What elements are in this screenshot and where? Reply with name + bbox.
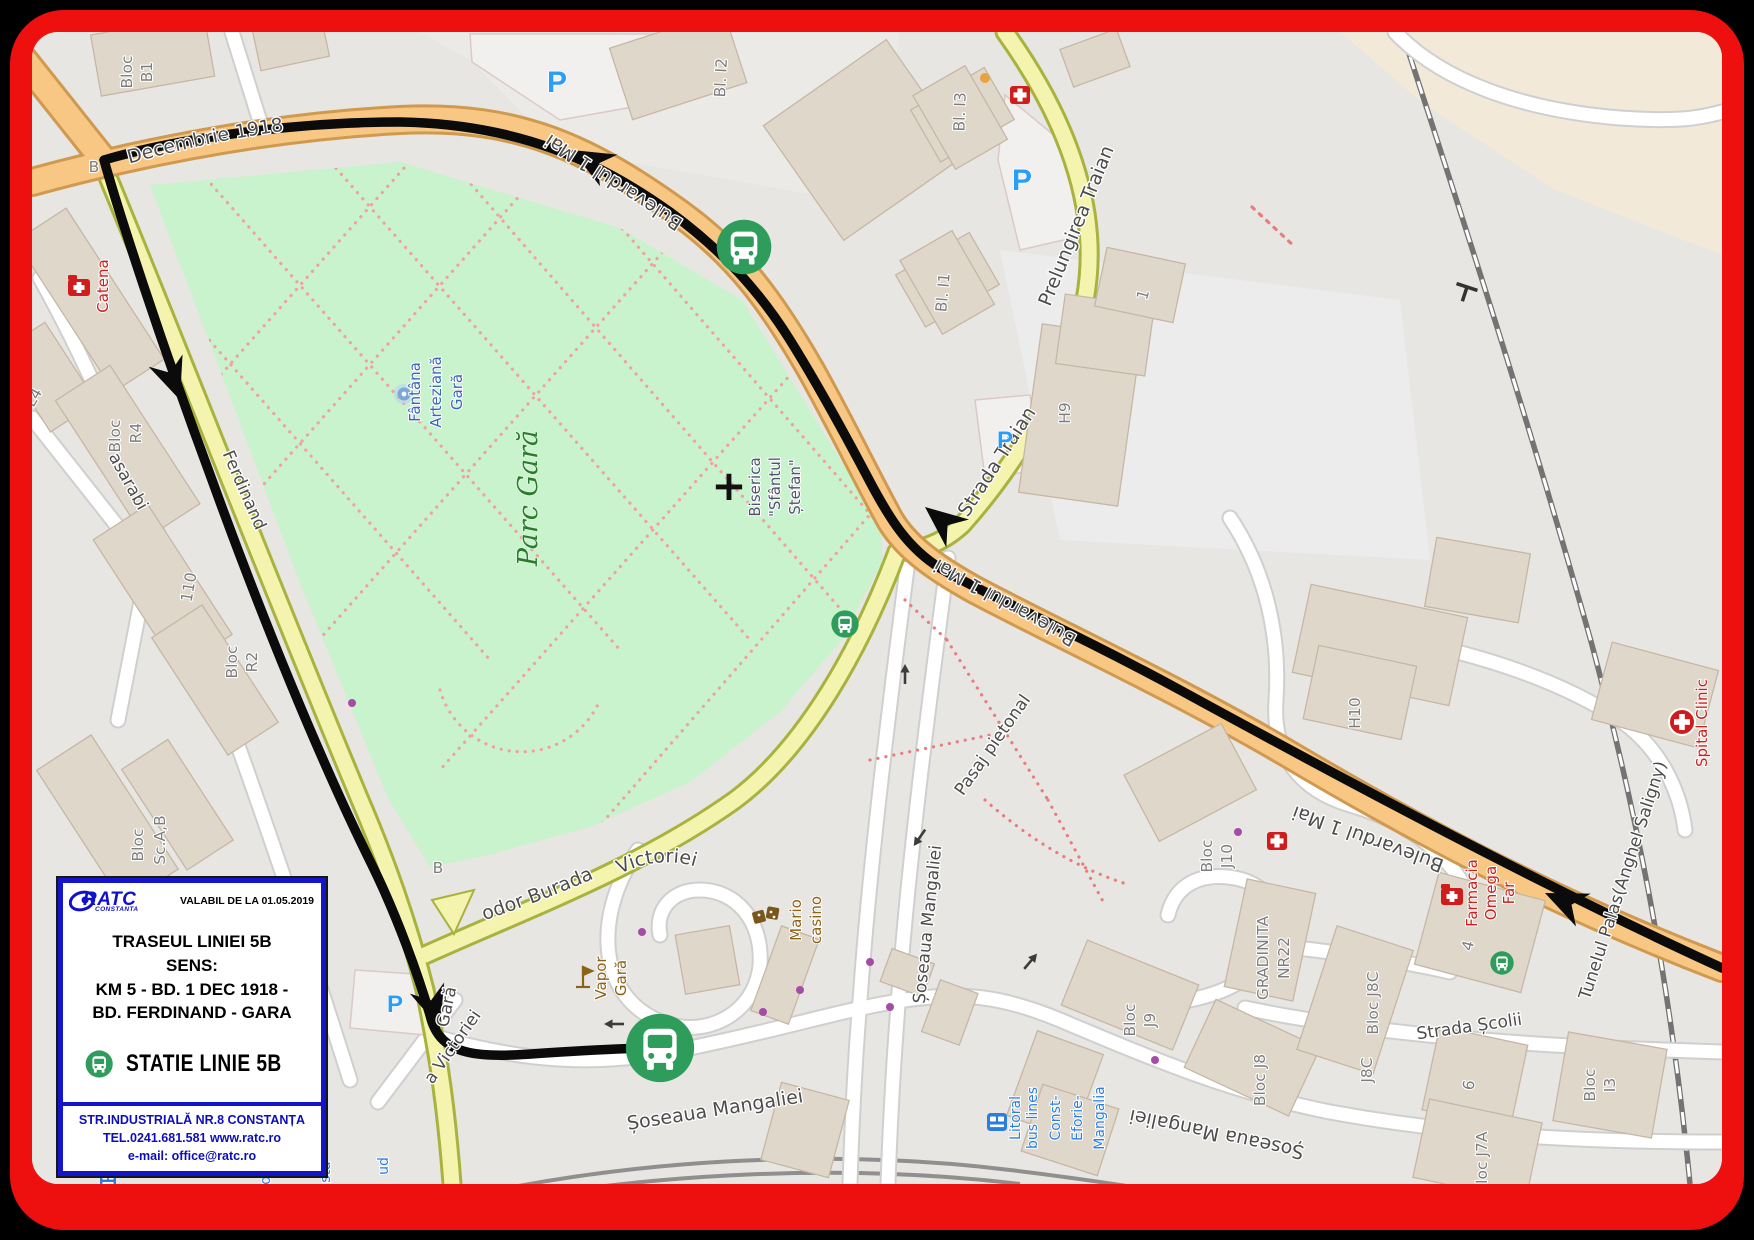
svg-text:GRADINITA: GRADINITA xyxy=(1254,915,1272,1000)
svg-text:P: P xyxy=(387,991,403,1018)
bus-stop-park xyxy=(831,610,858,637)
station-legend-label: STATIE LINIE 5B xyxy=(126,1050,282,1078)
screenshot-root: Bulevardul 1 Decembrie 1918 Strada Theod… xyxy=(0,0,1754,1240)
svg-text:NR22: NR22 xyxy=(1275,937,1293,979)
svg-text:P: P xyxy=(1012,164,1032,197)
clinic-cross-icon xyxy=(1010,86,1030,104)
svg-text:casino: casino xyxy=(807,896,825,944)
svg-text:Arteziană: Arteziană xyxy=(427,356,445,427)
svg-text:Sc.A,B: Sc.A,B xyxy=(151,815,169,864)
route-leg-2: BD. FERDINAND - GARA xyxy=(63,1001,321,1025)
svg-text:Biserica: Biserica xyxy=(746,457,764,516)
church-cross-icon: + xyxy=(711,461,746,510)
company-phone-web: TEL.0241.681.581 www.ratc.ro xyxy=(63,1129,321,1147)
svg-text:Spital Clinic: Spital Clinic xyxy=(1693,679,1711,767)
svg-text:Ștefan": Ștefan" xyxy=(786,459,804,515)
svg-text:Bloc: Bloc xyxy=(1581,1069,1599,1102)
svg-text:Bl. I3: Bl. I3 xyxy=(950,92,969,132)
svg-text:Litoral: Litoral xyxy=(1008,1096,1024,1140)
svg-text:B1: B1 xyxy=(138,62,156,83)
svg-text:Gară: Gară xyxy=(612,960,630,996)
svg-text:H9: H9 xyxy=(1056,402,1074,424)
svg-text:H10: H10 xyxy=(1346,697,1364,728)
legend-title-block: TRASEUL LINIEI 5B SENS: KM 5 - BD. 1 DEC… xyxy=(63,930,321,1025)
svg-text:Bloc: Bloc xyxy=(118,56,136,89)
svg-text:I3: I3 xyxy=(1601,1078,1619,1092)
company-address: STR.INDUSTRIALĂ NR.8 CONSTANȚA xyxy=(63,1111,321,1129)
route-title: TRASEUL LINIEI 5B xyxy=(63,930,321,954)
svg-text:Bloc: Bloc xyxy=(129,829,147,862)
svg-text:J9: J9 xyxy=(1141,1013,1159,1028)
legend-contact-block: STR.INDUSTRIALĂ NR.8 CONSTANȚA TEL.0241.… xyxy=(63,1102,321,1171)
litoral-bus-icon xyxy=(987,1113,1007,1131)
svg-text:Mario: Mario xyxy=(787,899,805,941)
bus-stop-gara xyxy=(626,1014,694,1082)
route-direction-label: SENS: xyxy=(63,954,321,978)
svg-text:"Sfântul: "Sfântul xyxy=(766,457,784,517)
ratc-logo: RATC CONSTANTA xyxy=(69,888,155,918)
svg-text:Bl. I2: Bl. I2 xyxy=(711,58,731,98)
svg-text:Catena: Catena xyxy=(94,259,112,312)
valid-from-label: VALABIL DE LA 01.05.2019 xyxy=(180,895,314,907)
svg-text:Bloc J8C: Bloc J8C xyxy=(1364,971,1382,1034)
svg-text:Const-: Const- xyxy=(1048,1095,1064,1140)
hospital-icon xyxy=(1669,709,1695,735)
svg-text:Vapor: Vapor xyxy=(592,956,610,1000)
svg-text:Bloc J8: Bloc J8 xyxy=(1251,1054,1269,1106)
svg-text:Bloc J7A: Bloc J7A xyxy=(1473,1131,1491,1184)
svg-text:J10: J10 xyxy=(1218,844,1236,869)
svg-text:Farmacia: Farmacia xyxy=(1463,859,1481,927)
svg-text:Eforie-: Eforie- xyxy=(1070,1095,1086,1141)
svg-text:Bloc: Bloc xyxy=(106,420,124,453)
svg-text:ud: ud xyxy=(376,1157,392,1175)
svg-text:R4: R4 xyxy=(127,423,145,444)
svg-text:Fântâna: Fântâna xyxy=(406,362,424,422)
ratc-logo-subtext: CONSTANTA xyxy=(95,906,138,913)
poi-dot-orange xyxy=(980,73,990,83)
bus-stop-bd1dec xyxy=(717,220,772,275)
pharmacy-cross-icon xyxy=(1267,832,1287,850)
svg-text:J8C: J8C xyxy=(1358,1057,1376,1083)
svg-text:Far: Far xyxy=(1500,881,1518,904)
legend-panel: RATC CONSTANTA VALABIL DE LA 01.05.2019 … xyxy=(58,878,326,1176)
company-email: e-mail: office@ratc.ro xyxy=(63,1147,321,1165)
svg-text:Mangalia: Mangalia xyxy=(1092,1086,1108,1149)
svg-text:P: P xyxy=(997,427,1013,454)
svg-text:Omega: Omega xyxy=(1482,866,1500,920)
route-leg-1: KM 5 - BD. 1 DEC 1918 - xyxy=(63,978,321,1002)
station-legend-icon xyxy=(85,1041,113,1087)
svg-text:B: B xyxy=(433,859,444,877)
svg-text:bus lines: bus lines xyxy=(1025,1087,1041,1149)
svg-text:B: B xyxy=(89,158,100,176)
svg-text:Bloc: Bloc xyxy=(1121,1004,1139,1037)
bus-stop-scolii xyxy=(1490,951,1513,974)
svg-text:Bl. I1: Bl. I1 xyxy=(932,272,953,313)
svg-text:Bloc: Bloc xyxy=(223,646,241,679)
parc-gara-label: Parc Gară xyxy=(513,430,544,567)
svg-text:Bloc: Bloc xyxy=(1198,840,1216,873)
svg-text:R2: R2 xyxy=(243,652,261,673)
svg-text:P: P xyxy=(547,66,567,99)
svg-text:Gară: Gară xyxy=(448,374,466,410)
